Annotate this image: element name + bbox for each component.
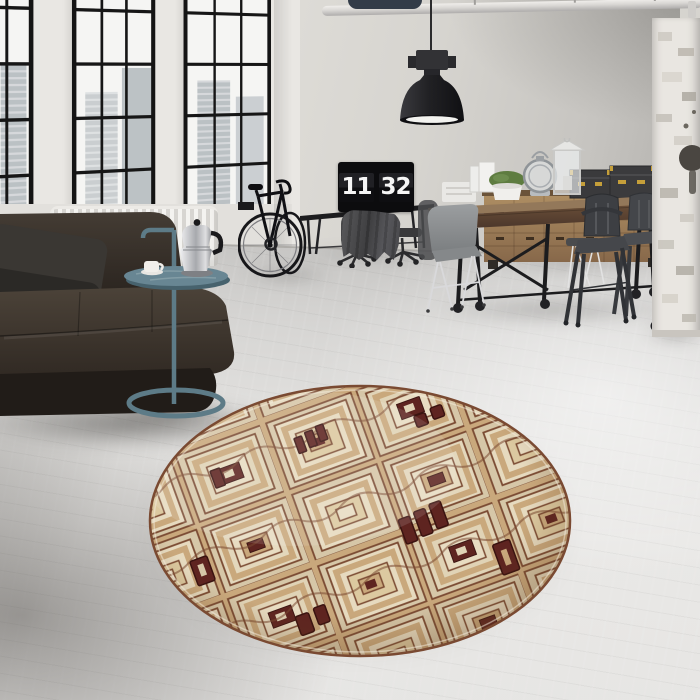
lamp-glow (406, 116, 458, 123)
column-texture (652, 18, 700, 336)
window-pillar (33, 0, 72, 233)
white-lantern (550, 138, 584, 194)
moka-pot (180, 219, 221, 277)
wall-hook-strap (689, 170, 696, 194)
wall-hook (679, 145, 700, 171)
pendant-lamp (394, 48, 470, 126)
loft-room-photo: 11 32 (0, 0, 700, 700)
flip-clock-monitor: 11 32 (338, 162, 414, 212)
glass-lantern (524, 152, 556, 196)
bike-saddle (248, 184, 263, 190)
coffee-cup (144, 261, 159, 272)
lamp-shade (400, 75, 464, 120)
ceiling-duct (348, 0, 422, 9)
window-muntins (76, 0, 151, 221)
dining-area (418, 138, 670, 338)
table-arm (143, 230, 174, 238)
window-muntins (0, 0, 29, 230)
tray-top (124, 266, 228, 286)
window-pillar (155, 0, 183, 224)
wall-dot (684, 124, 689, 129)
pipe-hanger (654, 0, 656, 1)
lamp-lug (408, 56, 416, 68)
window-2 (72, 0, 155, 226)
pipe-flange (688, 1, 696, 18)
potted-plant (489, 171, 525, 200)
column-base (652, 330, 700, 337)
pipe-hanger (574, 0, 576, 3)
lamp-lug (448, 56, 456, 68)
round-kuba-rug (146, 383, 574, 659)
wall-dot (692, 110, 696, 114)
lamp-canopy (416, 50, 448, 70)
clock-hours: 11 (339, 173, 373, 202)
window-1 (0, 0, 33, 235)
clock-minutes: 32 (379, 173, 413, 202)
jacket (341, 210, 401, 260)
wall-mount-bracket (238, 202, 254, 210)
pipe-hanger (474, 0, 476, 5)
